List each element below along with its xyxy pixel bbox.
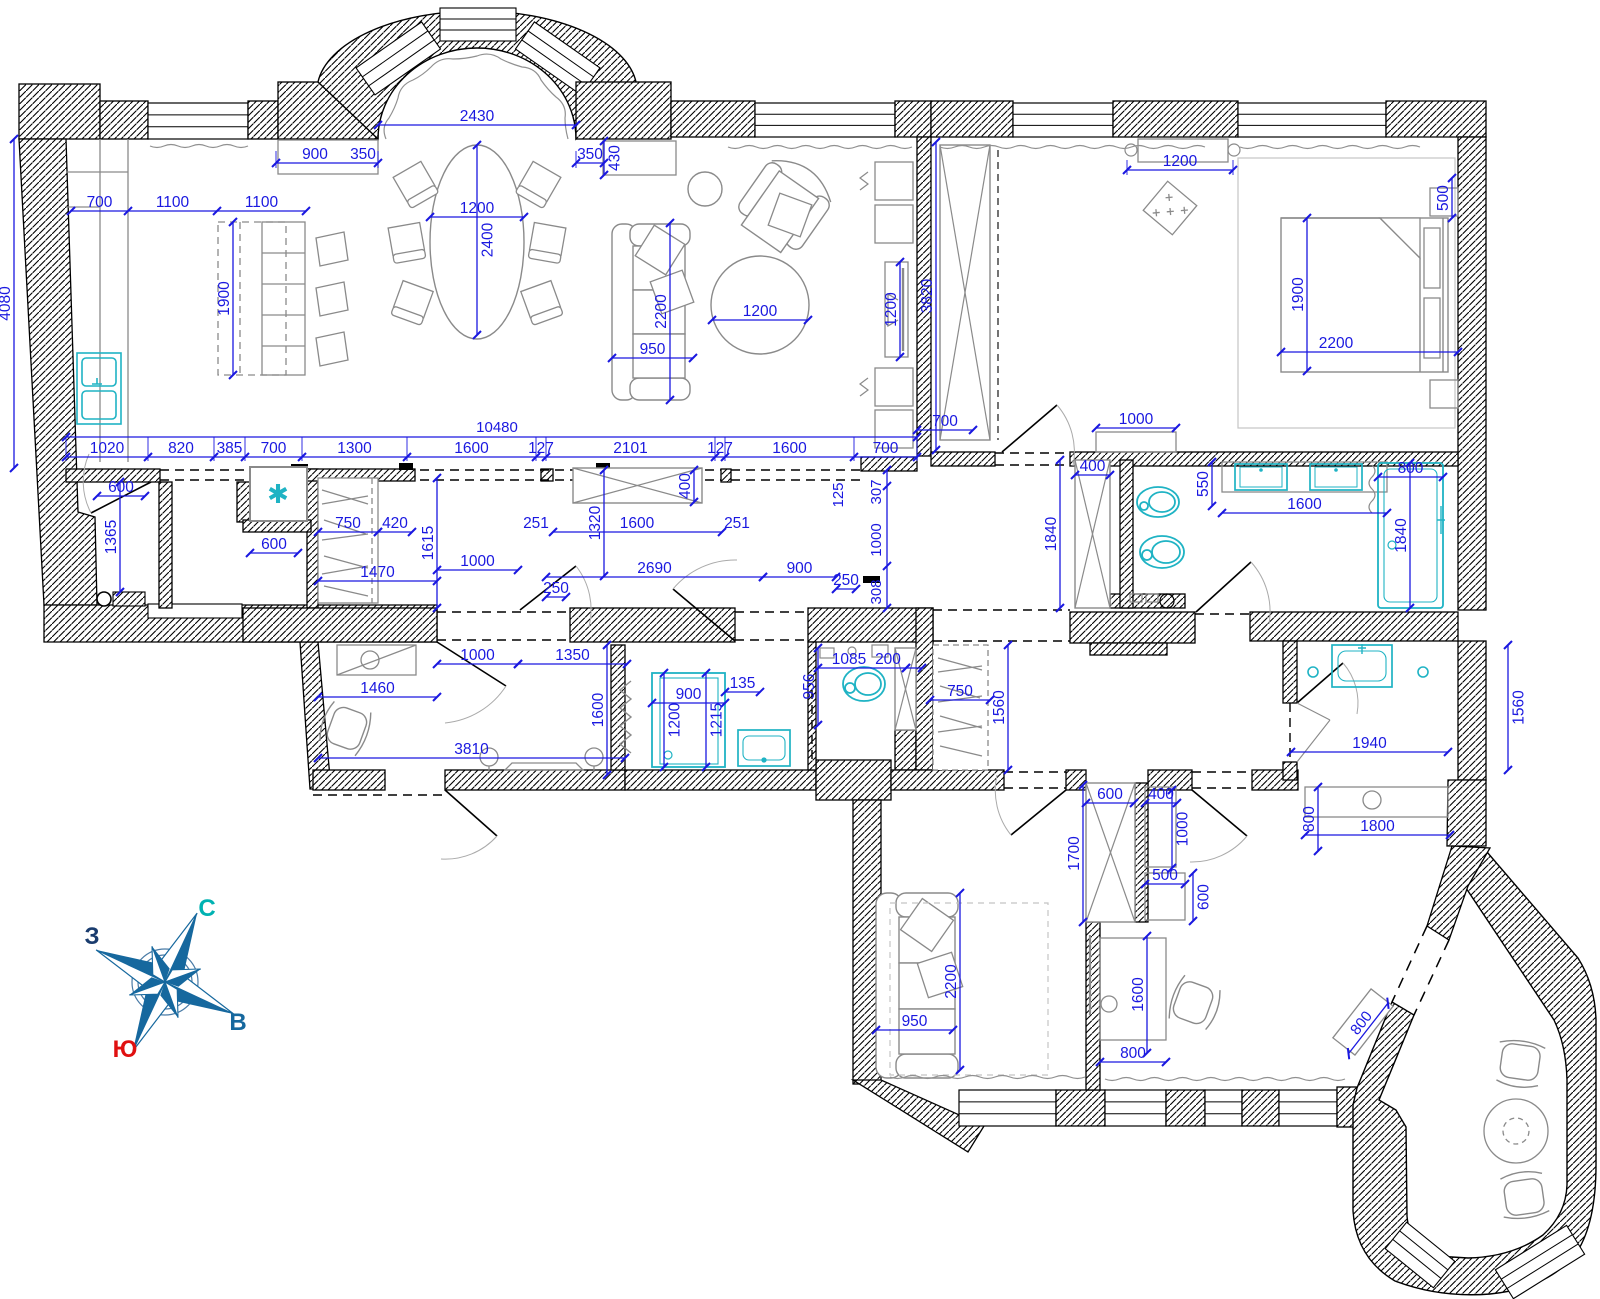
svg-text:3820: 3820 [919,278,936,313]
svg-text:700: 700 [261,440,287,457]
svg-text:250: 250 [543,580,569,597]
svg-text:430: 430 [607,145,624,171]
svg-text:700: 700 [87,194,113,211]
svg-text:600: 600 [1097,786,1123,803]
svg-text:350: 350 [577,146,603,163]
svg-text:1000: 1000 [868,523,885,556]
svg-text:1600: 1600 [620,515,655,532]
svg-text:1600: 1600 [590,692,607,727]
svg-text:400: 400 [1148,786,1174,803]
svg-text:700: 700 [932,413,958,430]
svg-text:500: 500 [1152,867,1178,884]
svg-text:400: 400 [677,473,694,499]
svg-text:1940: 1940 [1352,735,1387,752]
svg-text:750: 750 [335,515,361,532]
svg-text:1320: 1320 [587,505,604,540]
svg-text:1840: 1840 [1043,516,1060,551]
svg-text:10480: 10480 [476,419,518,436]
svg-text:900: 900 [787,560,813,577]
svg-text:1350: 1350 [555,647,590,664]
svg-text:820: 820 [168,440,194,457]
svg-text:2101: 2101 [613,440,647,457]
svg-text:1470: 1470 [360,564,395,581]
svg-text:2200: 2200 [943,964,960,999]
svg-text:2200: 2200 [653,294,670,329]
svg-text:1600: 1600 [454,440,489,457]
svg-text:251: 251 [724,515,750,532]
svg-text:1600: 1600 [1130,977,1147,1012]
svg-text:1365: 1365 [103,520,120,554]
svg-text:1200: 1200 [883,292,900,327]
svg-text:1200: 1200 [1163,153,1198,170]
svg-text:С: С [198,895,215,922]
svg-text:308: 308 [868,579,885,604]
svg-text:956: 956 [801,674,818,700]
svg-text:1000: 1000 [1119,411,1154,428]
svg-text:950: 950 [640,341,666,358]
svg-text:750: 750 [947,683,973,700]
svg-text:600: 600 [108,479,134,496]
svg-text:✱: ✱ [267,479,289,509]
svg-text:400: 400 [1080,458,1106,475]
svg-text:1215: 1215 [709,703,726,737]
svg-text:250: 250 [833,572,859,589]
svg-text:600: 600 [1196,884,1213,910]
svg-text:1560: 1560 [991,690,1008,725]
svg-text:135: 135 [730,675,756,692]
svg-text:1000: 1000 [460,553,495,570]
svg-text:600: 600 [261,536,287,553]
svg-text:900: 900 [302,146,328,163]
svg-text:2400: 2400 [480,222,497,257]
svg-text:1800: 1800 [1360,818,1395,835]
svg-text:1020: 1020 [90,440,125,457]
svg-text:1000: 1000 [1175,811,1192,846]
svg-text:550: 550 [1195,471,1212,497]
svg-text:1100: 1100 [156,194,190,211]
svg-text:1600: 1600 [1287,496,1322,513]
svg-text:950: 950 [902,1013,928,1030]
svg-text:800: 800 [1301,806,1318,832]
svg-text:800: 800 [1120,1045,1146,1062]
svg-text:1700: 1700 [1066,836,1083,871]
svg-text:1200: 1200 [460,200,495,217]
svg-text:1900: 1900 [216,281,233,316]
svg-text:251: 251 [523,515,549,532]
svg-text:385: 385 [217,440,243,457]
svg-text:1900: 1900 [1290,277,1307,312]
svg-text:1615: 1615 [420,526,437,560]
svg-text:900: 900 [676,686,702,703]
svg-text:500: 500 [1435,185,1452,211]
svg-text:1200: 1200 [667,702,684,737]
svg-text:700: 700 [873,440,899,457]
svg-text:200: 200 [875,651,901,668]
svg-text:125: 125 [830,482,847,507]
svg-text:1100: 1100 [245,194,279,211]
svg-text:420: 420 [382,515,408,532]
svg-text:1300: 1300 [337,440,372,457]
svg-text:Ю: Ю [113,1036,138,1063]
svg-text:1200: 1200 [743,303,778,320]
svg-text:1560: 1560 [1511,690,1528,725]
svg-text:1000: 1000 [460,647,495,664]
svg-text:127: 127 [528,440,554,457]
svg-text:2200: 2200 [1319,335,1354,352]
svg-text:З: З [84,923,99,950]
svg-text:1840: 1840 [1393,518,1410,553]
svg-text:2430: 2430 [460,108,495,125]
svg-text:307: 307 [868,479,885,504]
svg-text:2690: 2690 [637,560,672,577]
svg-text:350: 350 [350,146,376,163]
svg-text:4080: 4080 [0,286,14,321]
svg-text:127: 127 [707,440,733,457]
svg-text:1085: 1085 [832,651,866,668]
svg-text:В: В [229,1009,246,1036]
svg-text:1600: 1600 [772,440,807,457]
svg-text:3810: 3810 [454,741,489,758]
svg-text:1460: 1460 [360,680,395,697]
